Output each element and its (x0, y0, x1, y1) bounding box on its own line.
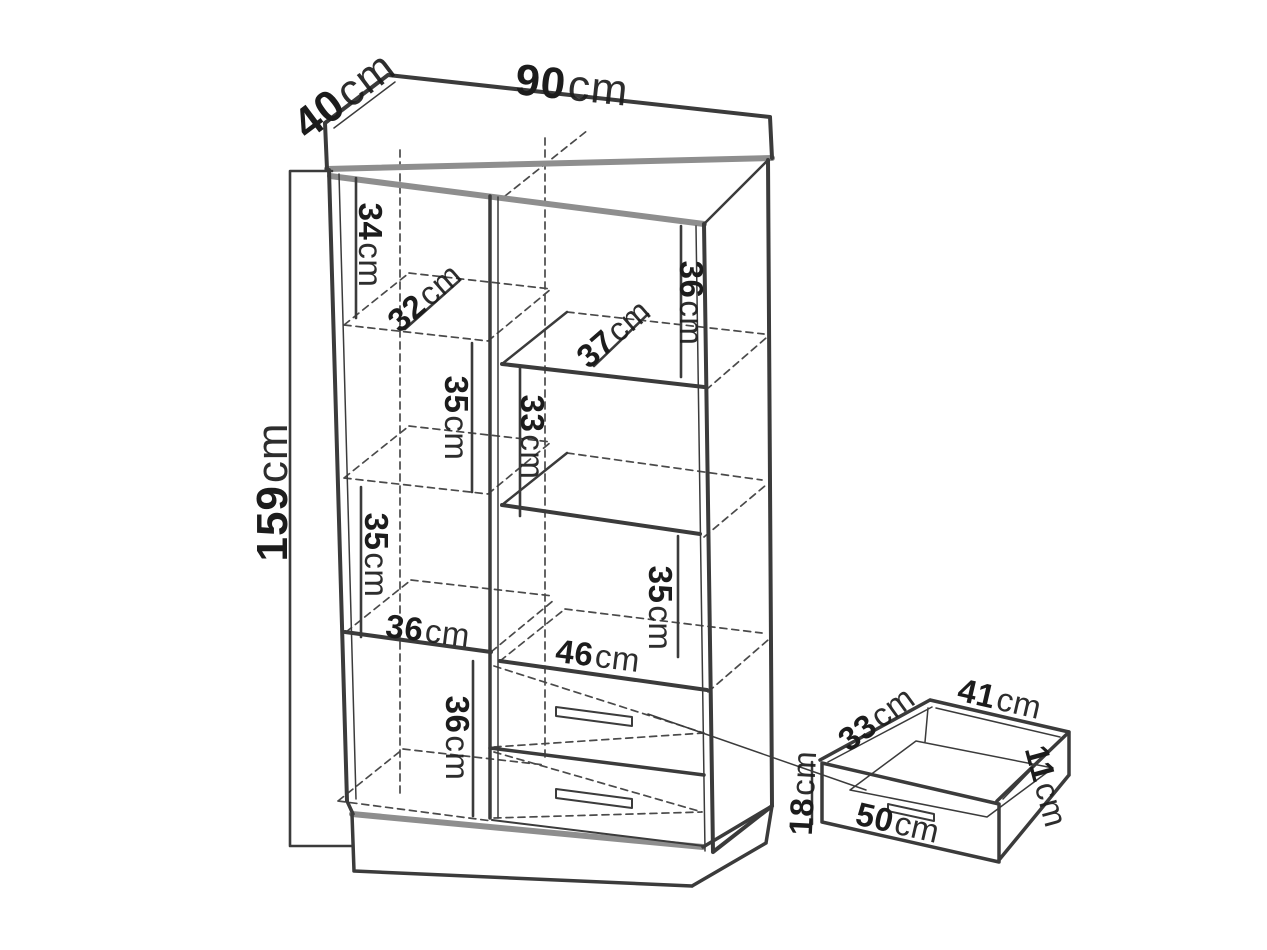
furniture-dimension-diagram: 90cm 40cm 159cm 34cm 32cm 35cm 35cm 36cm… (0, 0, 1267, 950)
dim-label-right-third-height: 35cm (643, 566, 680, 651)
dim-label-left-bottom-height: 36cm (440, 696, 477, 781)
dim-label-right-second-height: 33cm (515, 395, 552, 480)
dim-label-drawer-front-width: 50cm (853, 794, 944, 849)
dim-label-left-second-height: 35cm (439, 376, 476, 461)
dim-label-cabinet-depth: 40cm (284, 41, 404, 149)
dim-label-right-top-height: 36cm (674, 261, 711, 346)
dim-label-left-top-height: 34cm (353, 203, 390, 288)
dim-label-left-third-height: 35cm (359, 513, 396, 598)
dim-label-cabinet-width: 90cm (513, 55, 631, 116)
plinth-outline (347, 801, 772, 886)
dim-label-right-top-depth: 37cm (569, 291, 657, 375)
dim-label-drawer-depth: 33cm (831, 678, 921, 758)
right-shelf2-hidden (567, 453, 766, 537)
dim-label-drawer-side-height: 11cm (1018, 741, 1075, 831)
center-divider (490, 196, 498, 818)
dim-label-cabinet-height: 159cm (248, 422, 297, 561)
diagram-canvas: 90cm 40cm 159cm 34cm 32cm 35cm 35cm 36cm… (0, 0, 1267, 950)
drawer-handle-2 (556, 789, 632, 808)
height-dimension-line (290, 171, 352, 846)
drawer-handle-1 (556, 707, 632, 726)
dim-label-left-width: 36cm (384, 606, 473, 653)
dim-label-left-top-depth: 32cm (380, 255, 468, 339)
dim-label-drawer-front-height: 18cm (781, 750, 822, 837)
